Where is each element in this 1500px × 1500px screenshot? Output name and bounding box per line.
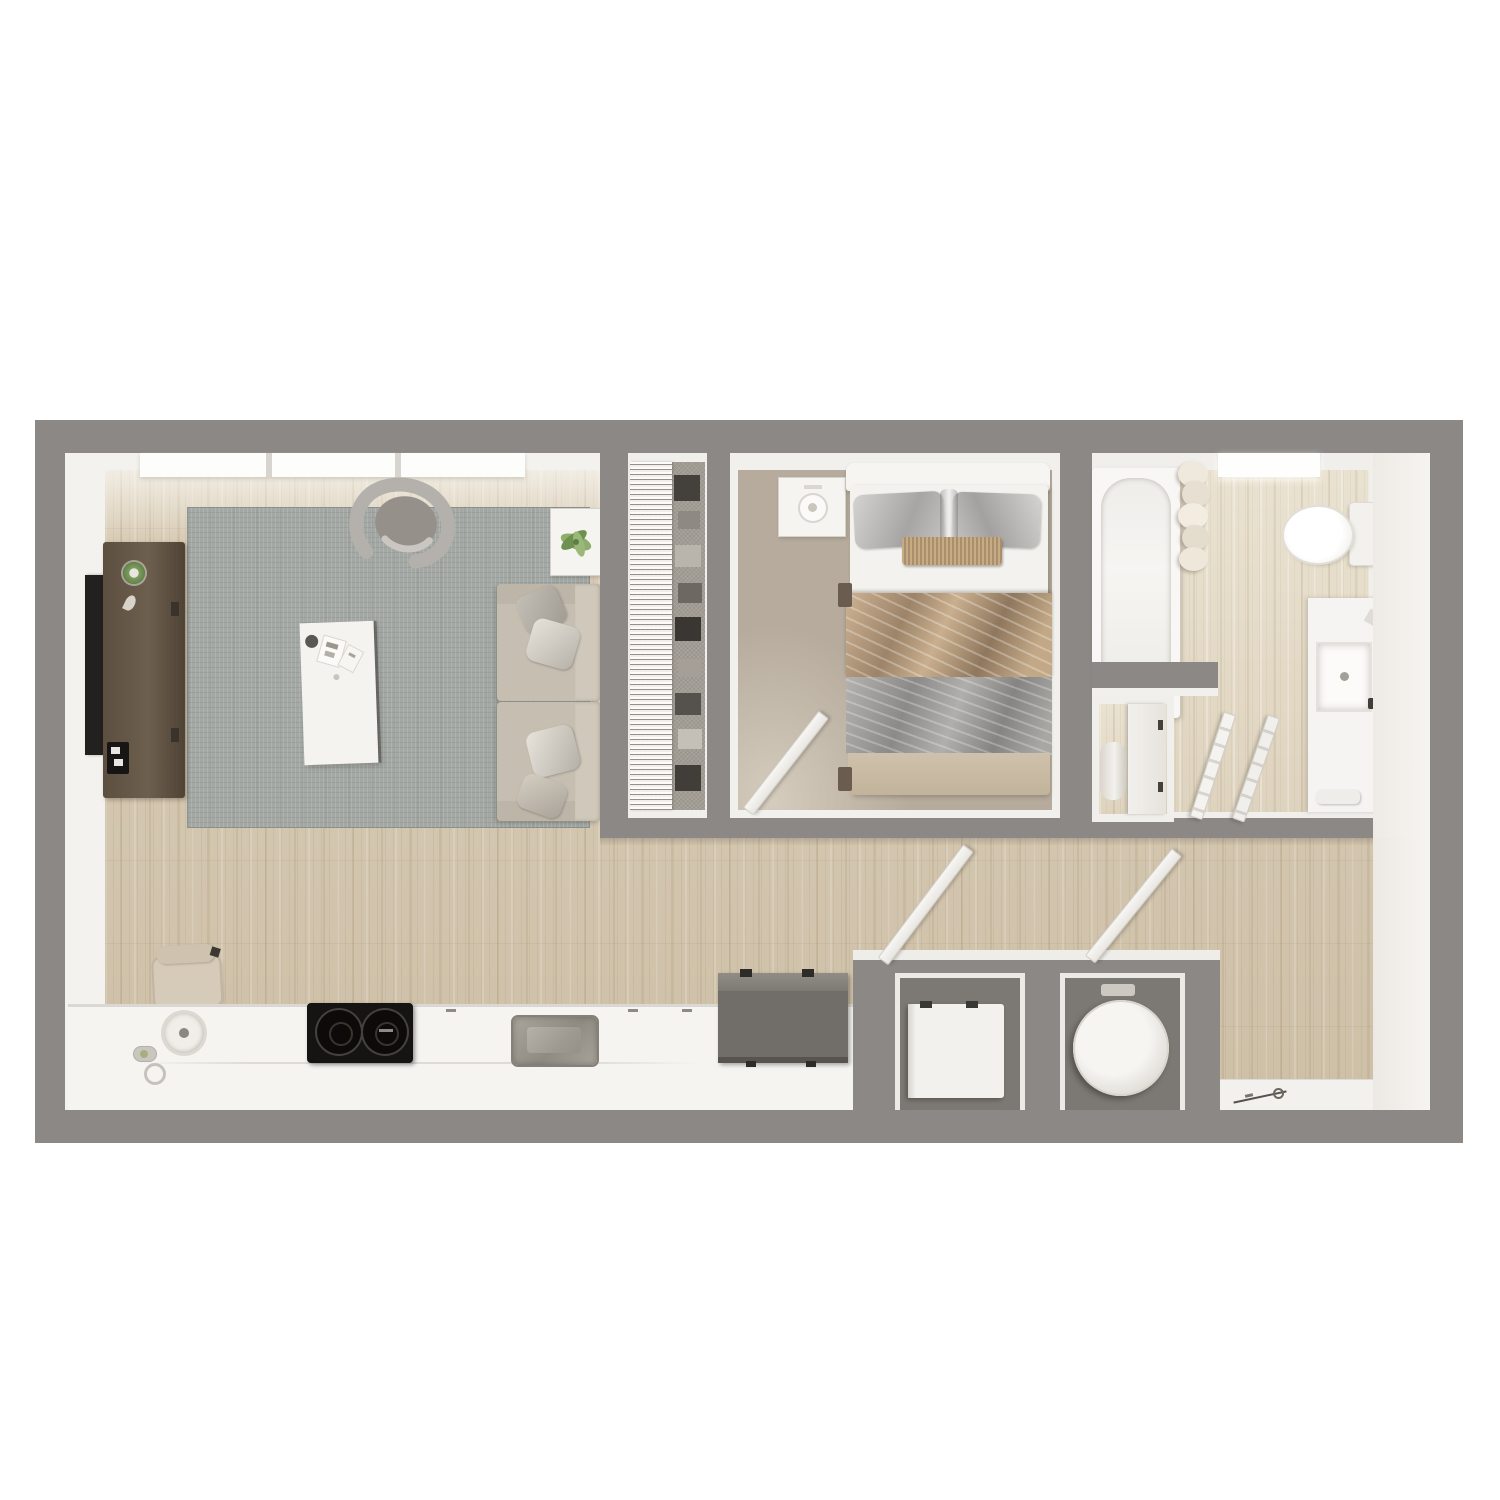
right-wall-face-upper [1373, 453, 1430, 838]
bed-foot-drape [848, 753, 1050, 795]
outer-wall-right [1430, 420, 1463, 1143]
shower-curtain [1176, 461, 1212, 573]
nightstand [778, 477, 846, 537]
linen-closet [1092, 696, 1174, 822]
sofa-pillow-white [524, 616, 582, 672]
kitchen-ring-item [144, 1063, 166, 1085]
toilet-bowl [1284, 507, 1352, 563]
console-plant-icon [123, 562, 145, 584]
gray-blanket [846, 677, 1052, 755]
rolled-towel [1100, 742, 1126, 800]
window-mullion-1 [266, 453, 272, 477]
heater-closet [1060, 973, 1185, 1110]
coffee-table [300, 621, 379, 765]
closet-room [628, 453, 707, 818]
table-decor-dot [305, 635, 318, 648]
game-console [107, 742, 129, 774]
kitchen-round-sink [164, 1013, 204, 1053]
sofa-seat-upper [497, 584, 601, 701]
console-handle-1 [171, 602, 179, 616]
hanging-clothes [672, 467, 705, 807]
kitchen-chair [148, 943, 225, 1011]
media-console [103, 542, 185, 798]
right-wall-face [1373, 838, 1430, 1110]
bathroom-room [1092, 453, 1373, 818]
wall-living-closet [600, 453, 628, 838]
refrigerator [718, 973, 848, 1063]
vanity-towel-2 [1316, 790, 1360, 804]
curved-accent-chair [341, 469, 467, 577]
sofa-pillow-white-2 [524, 723, 582, 779]
wall-closet-bedroom [707, 453, 730, 838]
wall-bedroom-bath [1060, 453, 1092, 838]
tv-screen [85, 575, 103, 755]
hall-wall-shadow [600, 838, 1430, 846]
plant-icon [550, 508, 603, 576]
washer-closet [895, 973, 1025, 1110]
bed-mattress [850, 485, 1048, 795]
counter-edge-line [138, 1062, 698, 1064]
linen-closet-door [1128, 704, 1166, 814]
wall-bottom-run [600, 818, 1430, 838]
outer-wall-bottom [35, 1110, 1463, 1143]
bathroom-skylight [1218, 453, 1320, 477]
console-leaf-decor [122, 594, 138, 613]
closet-wire-shelving [630, 462, 672, 810]
bed-frame-post-top [838, 583, 852, 607]
outer-wall-left [35, 420, 65, 1143]
sofa-seat-lower [497, 702, 601, 821]
bed-frame-post-bottom [838, 767, 852, 791]
water-heater [1073, 1000, 1169, 1096]
two-burner-cooktop [307, 1003, 413, 1063]
counter-handle-1 [446, 1009, 456, 1012]
bronze-blanket [846, 593, 1052, 679]
window-mullion-2 [395, 453, 401, 477]
bed-bolster [902, 537, 1002, 565]
entry-keys [1233, 1086, 1291, 1102]
side-table [550, 508, 603, 576]
bathroom-stub-wall [1092, 662, 1218, 688]
counter-handle-2 [628, 1009, 638, 1012]
washer [908, 1004, 1004, 1098]
kitchen-soap-item [134, 1047, 156, 1061]
living-windows [140, 453, 525, 477]
floorplan-canvas [0, 0, 1500, 1500]
outer-wall-top [35, 420, 1463, 453]
kitchen-basin-sink [513, 1017, 597, 1065]
counter-handle-3 [682, 1009, 692, 1012]
utility-structure [853, 950, 1220, 1110]
console-handle-2 [171, 728, 179, 742]
